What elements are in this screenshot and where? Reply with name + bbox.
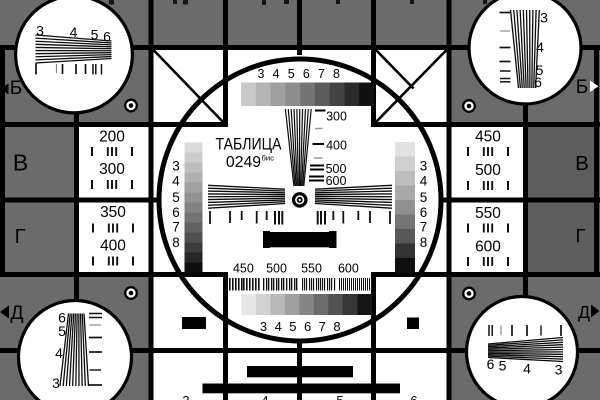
- svg-text:Б: Б: [576, 77, 588, 98]
- svg-text:3: 3: [52, 375, 60, 391]
- svg-text:Г: Г: [576, 226, 586, 246]
- svg-text:ТАБЛИЦА: ТАБЛИЦА: [216, 136, 282, 154]
- svg-text:5: 5: [499, 358, 507, 374]
- svg-text:200: 200: [99, 129, 125, 146]
- svg-text:Д: Д: [578, 302, 590, 322]
- svg-text:4: 4: [55, 345, 63, 361]
- svg-text:5: 5: [288, 67, 295, 81]
- svg-text:450: 450: [475, 129, 501, 146]
- svg-text:4: 4: [273, 67, 280, 81]
- svg-text:400: 400: [100, 238, 126, 255]
- svg-text:450: 450: [233, 262, 254, 276]
- svg-text:3: 3: [182, 393, 189, 400]
- svg-text:7: 7: [318, 67, 325, 81]
- svg-text:8: 8: [333, 67, 340, 81]
- svg-text:5: 5: [336, 393, 343, 400]
- svg-text:500: 500: [266, 262, 287, 276]
- svg-text:5: 5: [172, 190, 180, 205]
- svg-text:0249: 0249: [226, 154, 261, 171]
- svg-text:300: 300: [326, 110, 347, 124]
- svg-text:3: 3: [555, 362, 563, 378]
- svg-text:4: 4: [172, 174, 180, 189]
- svg-text:400: 400: [326, 139, 347, 153]
- svg-text:Б: Б: [10, 78, 22, 99]
- svg-text:4: 4: [420, 174, 428, 189]
- svg-text:550: 550: [301, 262, 322, 276]
- svg-text:600: 600: [326, 174, 347, 188]
- svg-text:7: 7: [172, 220, 180, 235]
- svg-text:Д: Д: [10, 302, 23, 324]
- svg-text:3: 3: [258, 67, 265, 81]
- svg-text:7: 7: [319, 319, 326, 334]
- svg-text:3: 3: [172, 159, 180, 174]
- svg-text:4: 4: [261, 393, 268, 400]
- svg-text:7: 7: [420, 220, 428, 235]
- svg-text:6: 6: [420, 205, 428, 220]
- svg-text:5: 5: [420, 190, 428, 205]
- svg-text:3: 3: [260, 319, 267, 334]
- svg-text:4: 4: [275, 319, 282, 334]
- svg-text:6: 6: [304, 319, 311, 334]
- svg-text:Г: Г: [15, 226, 26, 248]
- svg-text:8: 8: [420, 235, 428, 250]
- svg-text:3: 3: [540, 10, 548, 26]
- svg-text:550: 550: [475, 205, 501, 222]
- svg-text:8: 8: [172, 235, 180, 250]
- svg-text:300: 300: [99, 161, 125, 178]
- svg-text:5: 5: [58, 323, 66, 339]
- svg-text:4: 4: [523, 361, 531, 377]
- svg-text:600: 600: [475, 239, 501, 256]
- svg-text:3: 3: [420, 159, 428, 174]
- svg-text:В: В: [575, 152, 589, 175]
- svg-text:бис: бис: [262, 154, 275, 163]
- svg-text:600: 600: [338, 262, 359, 276]
- svg-text:8: 8: [333, 319, 340, 334]
- svg-text:6: 6: [303, 67, 310, 81]
- svg-text:6: 6: [410, 393, 417, 400]
- svg-text:6: 6: [172, 205, 180, 220]
- svg-text:500: 500: [475, 162, 501, 179]
- svg-text:В: В: [13, 150, 28, 176]
- svg-text:5: 5: [289, 319, 296, 334]
- svg-text:350: 350: [100, 204, 126, 221]
